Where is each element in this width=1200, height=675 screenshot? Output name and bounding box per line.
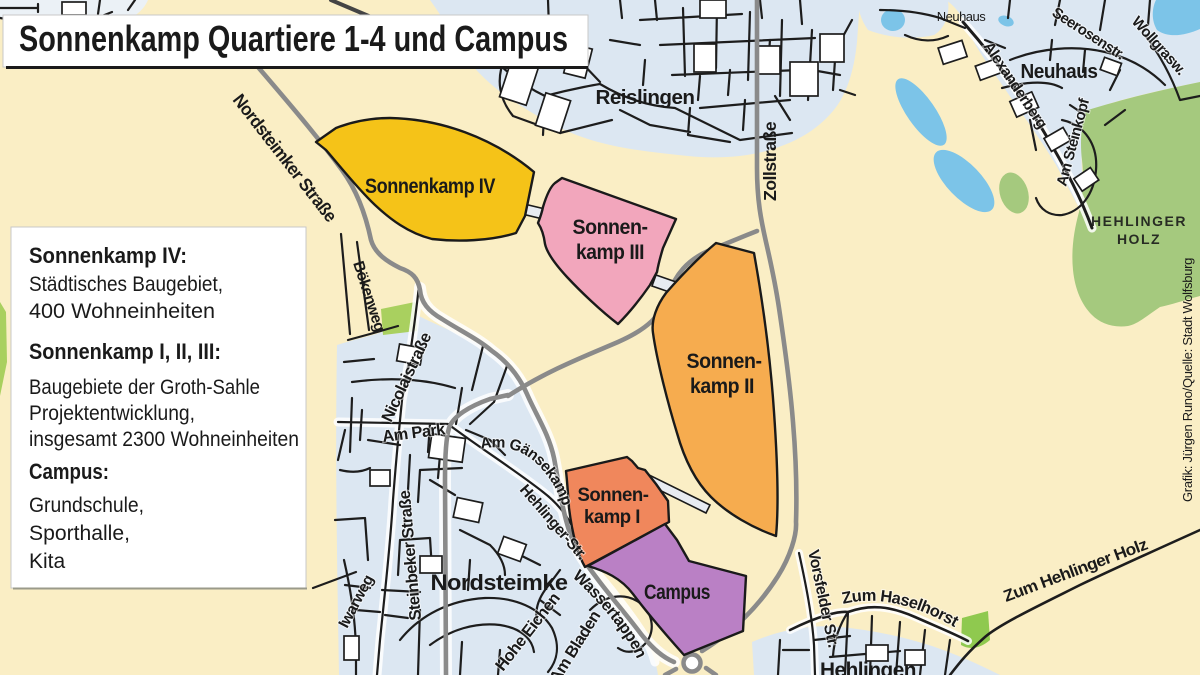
svg-text:Hehlingen: Hehlingen xyxy=(820,659,916,675)
svg-text:kamp II: kamp II xyxy=(690,375,754,398)
svg-text:400 Wohneinheiten: 400 Wohneinheiten xyxy=(29,300,215,323)
svg-text:Neuhaus: Neuhaus xyxy=(1021,61,1098,83)
svg-text:Neuhaus: Neuhaus xyxy=(937,9,987,24)
svg-text:Grundschule,: Grundschule, xyxy=(29,494,144,517)
svg-text:Städtisches Baugebiet,: Städtisches Baugebiet, xyxy=(29,273,223,296)
svg-text:insgesamt 2300 Wohneinheiten: insgesamt 2300 Wohneinheiten xyxy=(29,428,299,451)
svg-text:HOLZ: HOLZ xyxy=(1117,231,1161,247)
svg-text:Sonnen-: Sonnen- xyxy=(573,216,648,239)
svg-text:Sonnenkamp I, II, III:: Sonnenkamp I, II, III: xyxy=(29,339,221,364)
svg-text:Campus:: Campus: xyxy=(29,459,109,484)
svg-text:Projektentwicklung,: Projektentwicklung, xyxy=(29,402,195,425)
svg-text:Kita: Kita xyxy=(29,550,66,573)
svg-text:Sporthalle,: Sporthalle, xyxy=(29,522,130,545)
svg-text:Zollstraße: Zollstraße xyxy=(760,121,780,201)
svg-text:HEHLINGER: HEHLINGER xyxy=(1091,213,1187,229)
svg-text:Sonnenkamp IV: Sonnenkamp IV xyxy=(365,175,495,198)
svg-text:Grafik: Jürgen Runo/Quelle: St: Grafik: Jürgen Runo/Quelle: Stadt Wolfsb… xyxy=(1180,258,1195,502)
svg-text:Campus: Campus xyxy=(644,581,710,604)
svg-text:kamp III: kamp III xyxy=(576,241,644,264)
svg-text:Baugebiete der Groth-Sahle: Baugebiete der Groth-Sahle xyxy=(29,376,260,399)
svg-text:Reislingen: Reislingen xyxy=(596,87,695,109)
svg-text:Sonnen-: Sonnen- xyxy=(687,350,762,373)
svg-text:Sonnen-: Sonnen- xyxy=(578,485,649,506)
svg-text:Sonnenkamp IV:: Sonnenkamp IV: xyxy=(29,243,187,268)
svg-text:Sonnenkamp Quartiere 1-4 und C: Sonnenkamp Quartiere 1-4 und Campus xyxy=(19,18,568,59)
svg-text:kamp I: kamp I xyxy=(584,507,640,528)
